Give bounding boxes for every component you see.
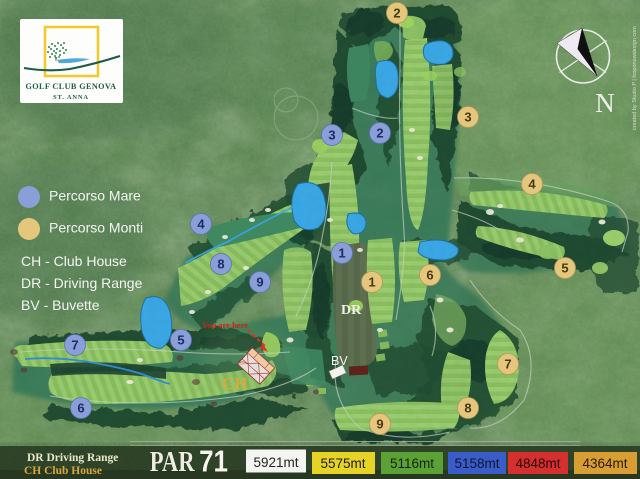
- svg-text:4: 4: [528, 177, 536, 192]
- svg-text:8: 8: [217, 257, 224, 272]
- svg-text:7: 7: [71, 338, 78, 353]
- svg-text:GOLF CLUB GENOVA: GOLF CLUB GENOVA: [25, 82, 116, 91]
- svg-text:PAR: PAR: [150, 445, 195, 477]
- svg-text:1: 1: [368, 275, 375, 290]
- svg-text:71: 71: [199, 444, 228, 479]
- svg-text:BV: BV: [331, 354, 348, 368]
- svg-text:DR Driving Range: DR Driving Range: [27, 452, 118, 464]
- svg-text:5: 5: [177, 333, 184, 348]
- svg-text:9: 9: [256, 275, 263, 290]
- svg-text:8: 8: [464, 401, 471, 416]
- svg-text:1: 1: [338, 246, 345, 261]
- svg-text:6: 6: [77, 401, 84, 416]
- svg-text:3: 3: [464, 110, 471, 125]
- svg-text:2: 2: [393, 6, 400, 21]
- svg-text:DR: DR: [341, 303, 362, 318]
- svg-text:5921mt: 5921mt: [253, 455, 298, 470]
- svg-text:ST. ANNA: ST. ANNA: [53, 94, 89, 101]
- svg-text:N: N: [595, 88, 615, 118]
- svg-text:4364mt: 4364mt: [582, 456, 627, 471]
- svg-text:9: 9: [376, 417, 383, 432]
- svg-text:Percorso Mare: Percorso Mare: [49, 188, 141, 204]
- svg-text:CH Club House: CH Club House: [24, 465, 102, 477]
- svg-text:5: 5: [561, 261, 568, 276]
- svg-text:CH: CH: [222, 374, 248, 393]
- svg-text:DR - Driving Range: DR - Driving Range: [21, 275, 143, 291]
- svg-text:4: 4: [197, 217, 205, 232]
- svg-text:You are here: You are here: [202, 320, 248, 330]
- svg-text:5116mt: 5116mt: [390, 456, 434, 471]
- svg-text:5575mt: 5575mt: [320, 456, 365, 471]
- svg-text:5158mt: 5158mt: [454, 456, 499, 471]
- svg-text:created by Studio P | lcoponew: created by Studio P | lcoponewdesign com: [632, 26, 638, 130]
- svg-text:BV - Buvette: BV - Buvette: [21, 297, 100, 313]
- svg-text:Percorso Monti: Percorso Monti: [49, 220, 143, 236]
- svg-text:2: 2: [376, 126, 383, 141]
- svg-text:7: 7: [504, 357, 511, 372]
- svg-text:6: 6: [426, 268, 433, 283]
- svg-text:4848mt: 4848mt: [515, 456, 560, 471]
- svg-text:3: 3: [328, 128, 335, 143]
- svg-text:CH - Club House: CH - Club House: [21, 253, 127, 269]
